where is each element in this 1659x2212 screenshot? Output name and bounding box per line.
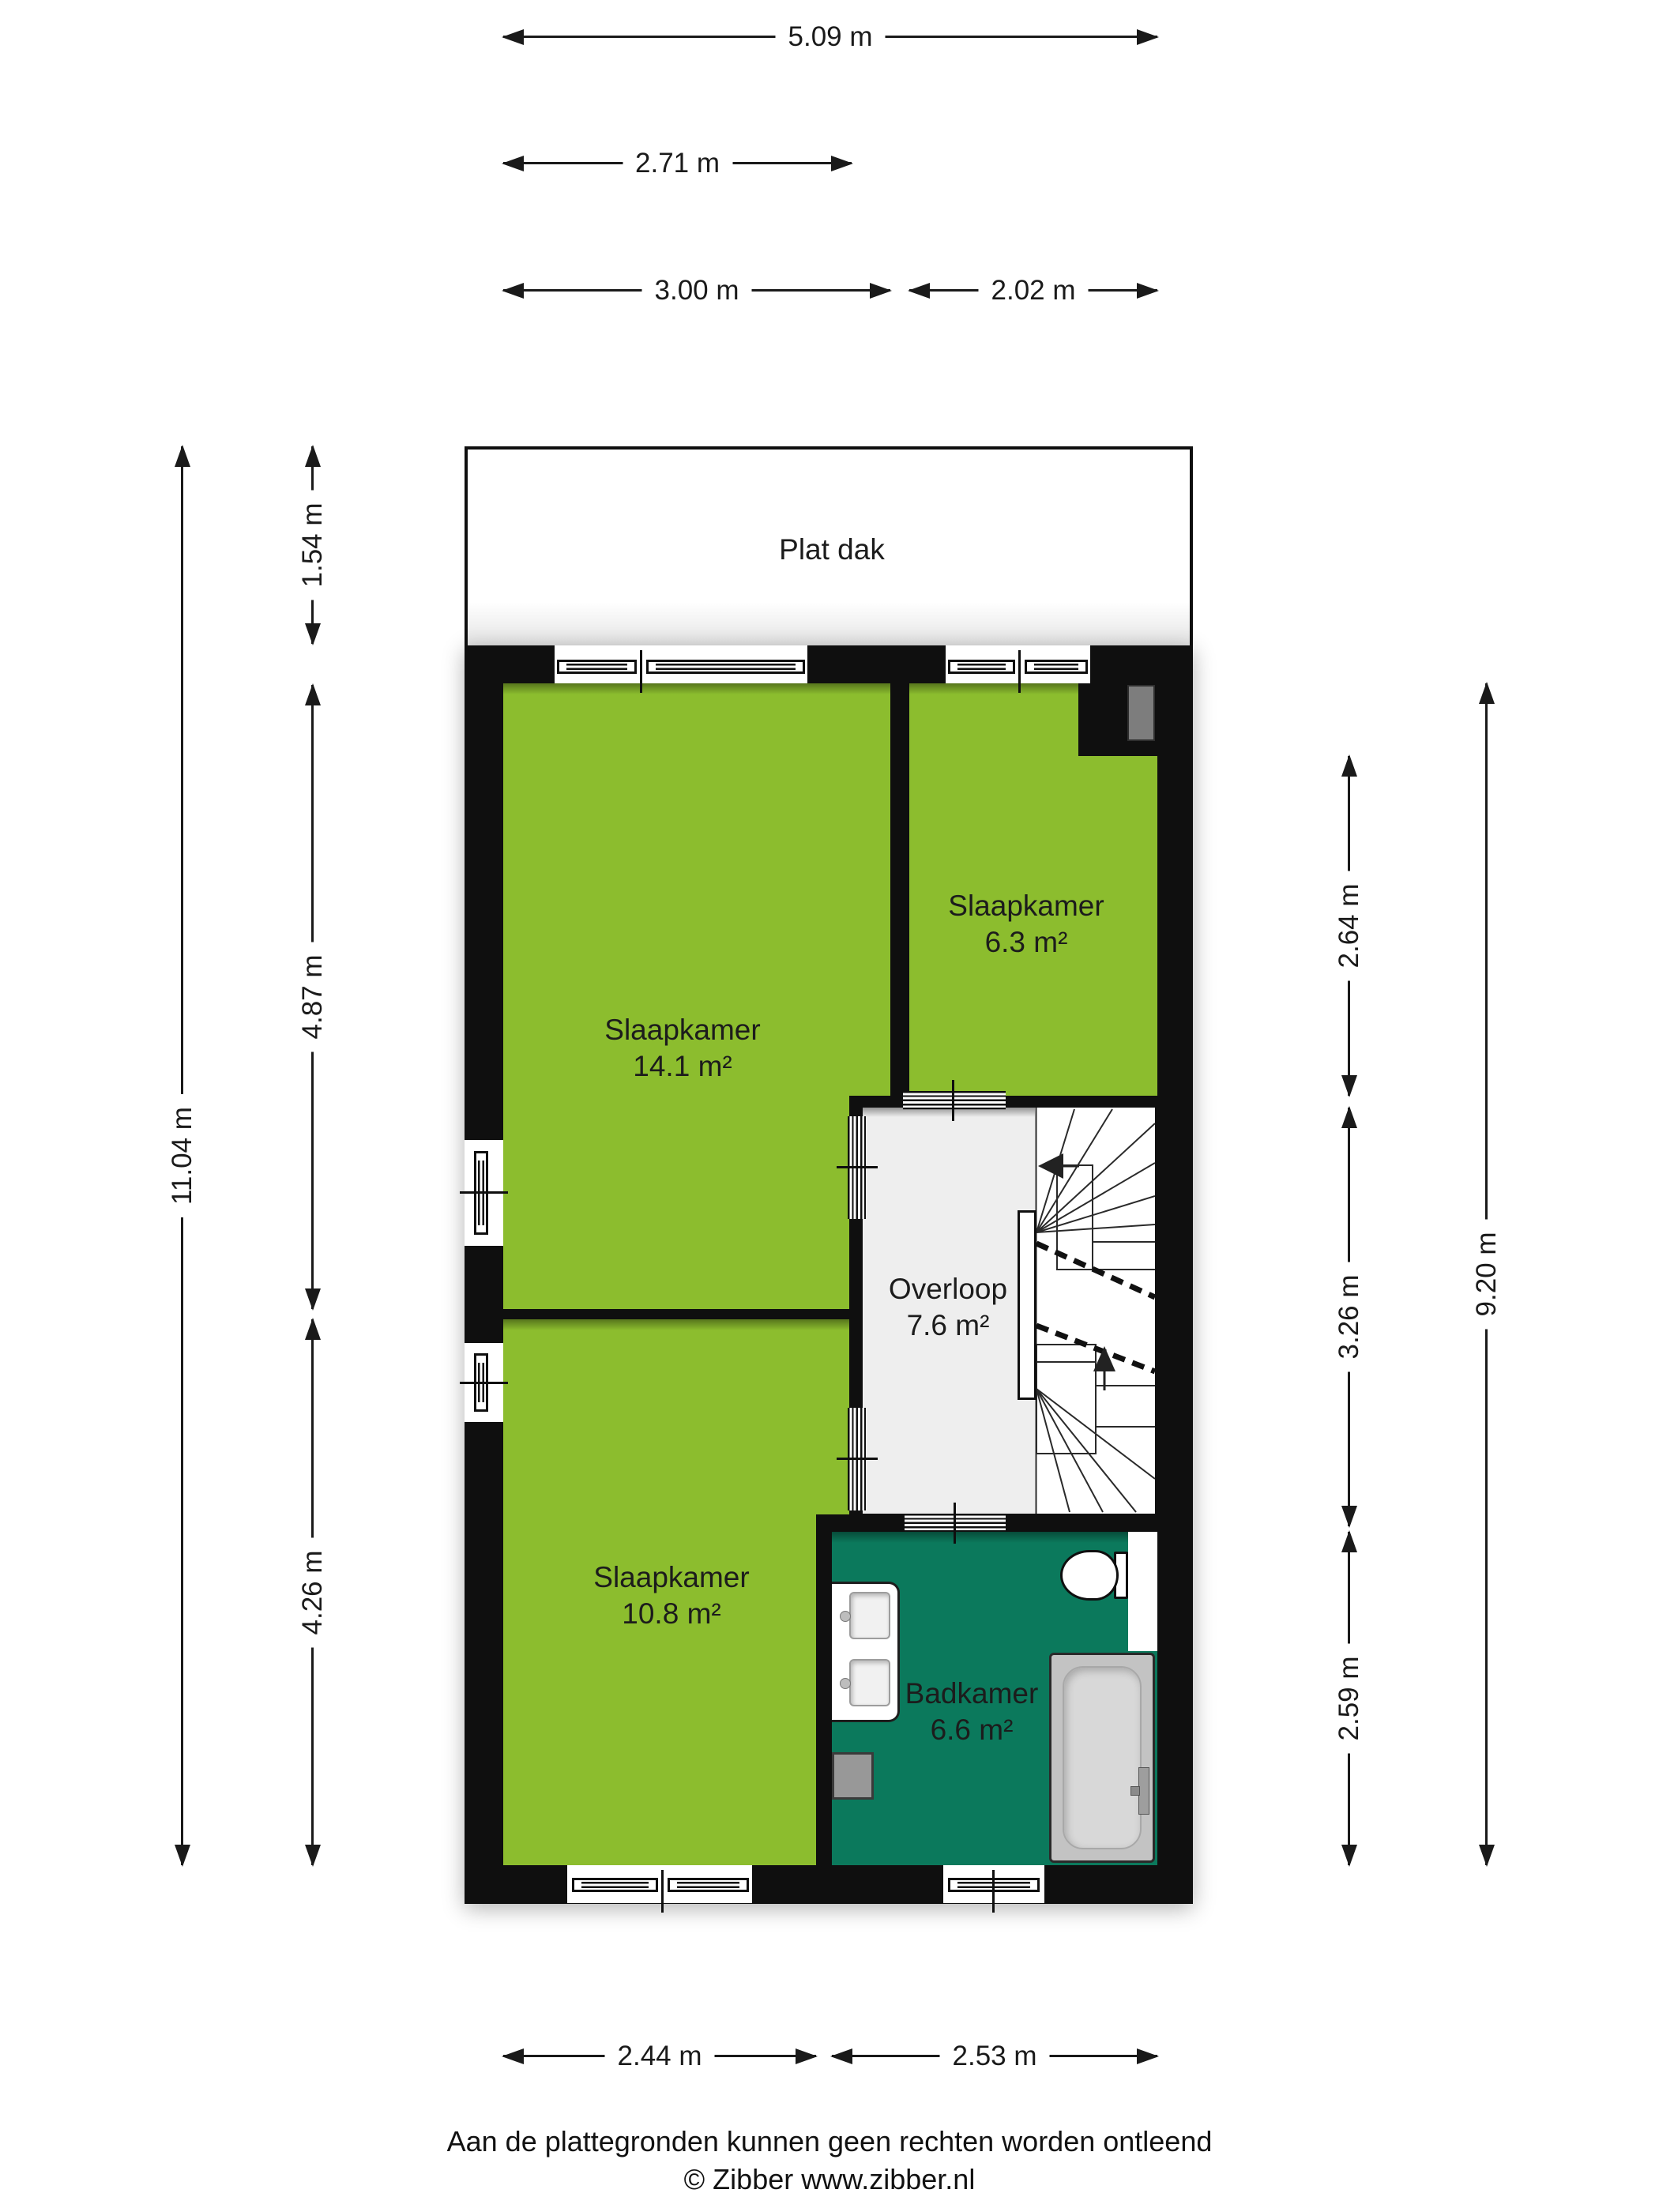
dim-label: 2.53 m xyxy=(940,2039,1050,2074)
dim-badkamer-height: 2.59 m xyxy=(1348,1532,1350,1865)
room-area: 14.1 m² xyxy=(604,1048,760,1085)
label-badkamer: Badkamer 6.6 m² xyxy=(905,1676,1039,1748)
appliance xyxy=(832,1752,874,1800)
dim-interior-height: 9.20 m xyxy=(1485,683,1488,1865)
dim-label: 2.71 m xyxy=(623,146,732,181)
dim-label: 1.54 m xyxy=(295,491,330,600)
room-area: 6.3 m² xyxy=(948,924,1104,961)
label-slaapkamer2: Slaapkamer 6.3 m² xyxy=(948,888,1104,961)
room-slaapkamer1-lower xyxy=(503,683,849,1309)
window-tick xyxy=(460,1382,508,1384)
room-name: Overloop xyxy=(889,1271,1007,1307)
window-pane xyxy=(1025,660,1088,674)
dim-label: 11.04 m xyxy=(165,1094,200,1217)
dim-landing-width: 2.71 m xyxy=(503,162,852,164)
shaft xyxy=(1127,685,1155,741)
door-tick xyxy=(837,1166,878,1168)
dim-bedroom3-height: 4.26 m xyxy=(311,1319,314,1865)
wall-shadow xyxy=(503,683,890,694)
dim-total-height: 11.04 m xyxy=(181,446,183,1865)
flat-roof: Plat dak xyxy=(465,446,1193,645)
room-area: 6.6 m² xyxy=(905,1712,1039,1748)
dim-label: 3.00 m xyxy=(642,273,752,308)
room-name: Slaapkamer xyxy=(948,888,1104,924)
window-tick xyxy=(992,1870,995,1913)
room-area: 7.6 m² xyxy=(889,1307,1007,1344)
wall-recess xyxy=(1128,1532,1157,1651)
door-tick xyxy=(837,1458,878,1460)
dim-total-width: 5.09 m xyxy=(503,36,1157,38)
dim-bedroom2-width: 2.02 m xyxy=(909,289,1157,292)
dim-label: 2.64 m xyxy=(1332,871,1367,981)
wall-shadow xyxy=(832,1532,1157,1543)
dim-label: 5.09 m xyxy=(776,20,886,55)
window-pane xyxy=(557,660,637,674)
label-overloop: Overloop 7.6 m² xyxy=(889,1271,1007,1344)
label-slaapkamer3: Slaapkamer 10.8 m² xyxy=(593,1559,749,1632)
washbasin-bowl xyxy=(849,1592,890,1639)
dim-label: 2.02 m xyxy=(979,273,1089,308)
room-slaapkamer3-ext xyxy=(816,1319,849,1514)
dim-bedroom3-width: 2.44 m xyxy=(503,2055,816,2057)
floorplan-canvas: 5.09 m 2.71 m 3.00 m 2.02 m 11.04 m 1.54… xyxy=(0,0,1659,2212)
room-area: 10.8 m² xyxy=(593,1596,749,1632)
window-tick xyxy=(640,650,642,693)
room-name: Slaapkamer xyxy=(593,1559,749,1596)
dim-overloop-height: 3.26 m xyxy=(1348,1108,1350,1526)
dim-label: 4.87 m xyxy=(295,942,330,1052)
wall-shadow xyxy=(909,683,1078,694)
window-pane xyxy=(668,1878,749,1892)
double-washbasin xyxy=(832,1582,900,1722)
dim-bedroom1-width: 3.00 m xyxy=(503,289,890,292)
window-tick xyxy=(661,1870,664,1913)
room-name: Badkamer xyxy=(905,1676,1039,1712)
bathtub-faucet xyxy=(1138,1767,1149,1815)
staircase-drawing xyxy=(1035,1108,1155,1514)
door-tick xyxy=(952,1080,954,1121)
bathtub-inner xyxy=(1063,1666,1142,1849)
bathtub-faucet-knob xyxy=(1130,1786,1140,1796)
dim-label: 9.20 m xyxy=(1469,1220,1504,1330)
toilet xyxy=(1060,1550,1119,1601)
window-tick xyxy=(1018,650,1021,693)
dim-label: 2.44 m xyxy=(605,2039,715,2074)
dim-badkamer-width: 2.53 m xyxy=(832,2055,1157,2057)
window-pane xyxy=(948,660,1015,674)
copyright-text: © Zibber www.zibber.nl xyxy=(0,2163,1659,2196)
dim-bedroom2-height: 2.64 m xyxy=(1348,756,1350,1096)
disclaimer-text: Aan de plattegronden kunnen geen rechten… xyxy=(0,2125,1659,2158)
washbasin-bowl xyxy=(849,1659,890,1706)
dim-label: 3.26 m xyxy=(1332,1262,1367,1372)
dim-label: 2.59 m xyxy=(1332,1644,1367,1754)
bathtub xyxy=(1049,1653,1155,1863)
window-pane xyxy=(572,1878,658,1892)
staircase xyxy=(1035,1108,1155,1514)
window-pane xyxy=(646,660,805,674)
dim-roof-height: 1.54 m xyxy=(311,446,314,644)
label-slaapkamer1: Slaapkamer 14.1 m² xyxy=(604,1012,760,1085)
door-tick xyxy=(954,1503,956,1544)
roof-label: Plat dak xyxy=(779,532,885,568)
room-name: Slaapkamer xyxy=(604,1012,760,1048)
dim-label: 4.26 m xyxy=(295,1537,330,1647)
stairs-handrail xyxy=(1018,1210,1036,1400)
dim-bedroom1-height: 4.87 m xyxy=(311,685,314,1309)
door-overloop-slaapkamer2 xyxy=(903,1091,1006,1110)
window-tick xyxy=(460,1191,508,1194)
stairs-down-arrow-icon xyxy=(1038,1153,1063,1179)
wall-shadow xyxy=(503,1319,849,1330)
